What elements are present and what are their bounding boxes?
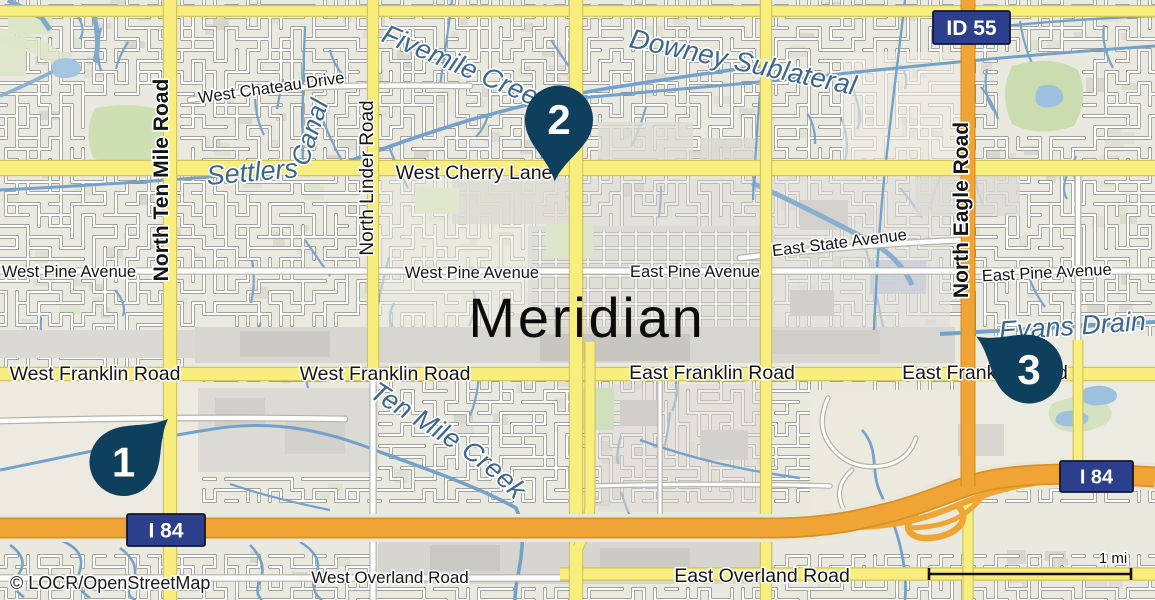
- svg-text:2: 2: [547, 96, 570, 143]
- svg-text:Meridian: Meridian: [468, 286, 705, 349]
- svg-text:1: 1: [112, 439, 135, 486]
- svg-text:East Pine Avenue: East Pine Avenue: [630, 263, 760, 281]
- svg-text:East Overland Road: East Overland Road: [674, 565, 850, 587]
- svg-text:I 84: I 84: [1080, 467, 1114, 489]
- svg-text:North Ten Mile Road: North Ten Mile Road: [150, 79, 173, 282]
- svg-text:3: 3: [1017, 346, 1040, 393]
- svg-text:West Franklin Road: West Franklin Road: [300, 363, 471, 385]
- svg-text:West Overland Road: West Overland Road: [311, 568, 468, 587]
- svg-text:© LOCR/OpenStreetMap: © LOCR/OpenStreetMap: [10, 573, 210, 593]
- svg-text:East Franklin Road: East Franklin Road: [629, 362, 795, 384]
- svg-text:I 84: I 84: [148, 520, 183, 543]
- svg-text:West Franklin Road: West Franklin Road: [10, 363, 181, 385]
- svg-text:West Cherry Lane: West Cherry Lane: [396, 162, 553, 184]
- svg-text:ID 55: ID 55: [946, 17, 997, 40]
- svg-text:West Pine Avenue: West Pine Avenue: [405, 264, 539, 282]
- svg-text:North Eagle Road: North Eagle Road: [950, 122, 973, 298]
- svg-text:North Linder Road: North Linder Road: [357, 100, 378, 255]
- svg-text:West Pine Avenue: West Pine Avenue: [2, 263, 136, 281]
- svg-text:1 mi: 1 mi: [1099, 550, 1127, 567]
